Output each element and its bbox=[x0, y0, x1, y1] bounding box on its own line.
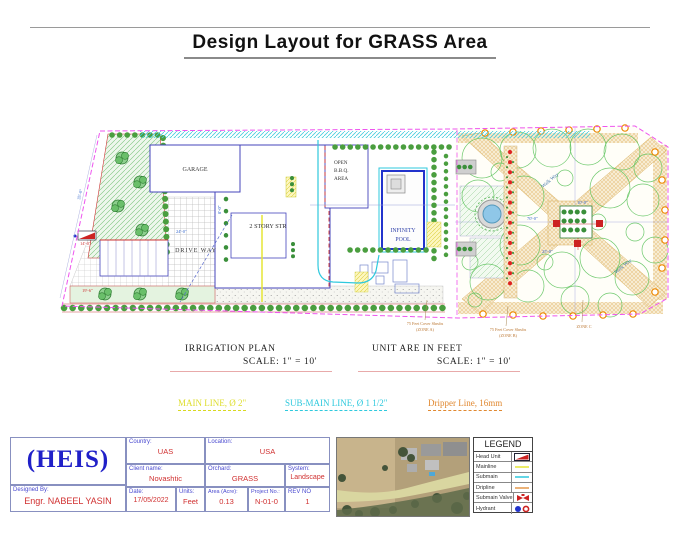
irrigation-plan-note: IRRIGATION PLAN bbox=[185, 344, 276, 354]
bbq-label: AREA bbox=[334, 176, 348, 182]
scale-note-left: SCALE: 1" = 10' bbox=[243, 357, 317, 367]
garage-label: GARAGE bbox=[183, 167, 208, 173]
submain-valve-symbol bbox=[553, 220, 560, 227]
legend-row-hydrant: Hydrant bbox=[474, 503, 532, 513]
legend: LEGEND Head Unit Mainline Submain Dripli… bbox=[473, 437, 533, 513]
site-plan-drawing: Walk Way Walk Way 70'-0" 10'-0" 25'-0" bbox=[0, 0, 680, 432]
submain-valve-symbol bbox=[596, 220, 603, 227]
hydrant-icon bbox=[511, 503, 532, 513]
zone-annotation: (ZONE A) bbox=[416, 327, 434, 332]
dim-label: 25'-0" bbox=[542, 249, 553, 254]
dripper-line-label: Dripper Line, 16mm bbox=[428, 398, 502, 411]
bbq-area-outline: OPEN B.B.Q. AREA bbox=[325, 145, 368, 208]
legend-row-mainline: Mainline bbox=[474, 462, 532, 472]
submain-valve-symbol bbox=[574, 240, 581, 247]
submain-icon bbox=[511, 473, 532, 482]
field-orchard: Orchard: GRASS bbox=[205, 464, 285, 487]
field-project: Project No.: N-01-0 bbox=[248, 487, 285, 512]
main-line-label: MAIN LINE, Ø 2" bbox=[178, 398, 246, 411]
bbq-label: B.B.Q. bbox=[334, 168, 349, 174]
dim-label: 19'-6" bbox=[82, 288, 93, 293]
zone-annotation: 75 Feet Cover Shrubs bbox=[490, 327, 527, 332]
concrete-strip bbox=[215, 286, 443, 303]
dim-label: 8'-0" bbox=[217, 205, 222, 214]
head-unit-icon bbox=[511, 452, 532, 461]
dripline-icon bbox=[511, 483, 532, 492]
dim-label: 24'-0" bbox=[176, 229, 187, 234]
note-underline bbox=[170, 371, 332, 372]
designed-by-field: Designed By: Engr. NABEEL YASIN bbox=[10, 485, 126, 512]
field-rev: REV NO 1 bbox=[285, 487, 330, 512]
field-units: Units: Feet bbox=[176, 487, 205, 512]
field-country: Country: UAS bbox=[126, 437, 205, 464]
legend-row-submain-valve: Submain Valve bbox=[474, 493, 532, 503]
submain-line-label: SUB-MAIN LINE, Ø 1 1/2" bbox=[285, 398, 387, 411]
legend-row-head-unit: Head Unit bbox=[474, 452, 532, 462]
field-area: Area (Acre): 0.13 bbox=[205, 487, 248, 512]
field-client: Client name: Novashtic bbox=[126, 464, 205, 487]
zone-annotation: ZONE C bbox=[576, 324, 591, 329]
company-logo-box: (HEIS) bbox=[10, 437, 126, 485]
mainline-icon bbox=[511, 462, 532, 471]
field-location: Location: USA bbox=[205, 437, 330, 464]
submain-valve-icon bbox=[513, 493, 532, 502]
legend-row-submain: Submain bbox=[474, 473, 532, 483]
legend-row-dripline: Dripline bbox=[474, 483, 532, 493]
driveway-label: DRIVE WAY bbox=[175, 248, 217, 254]
flower-bed-strip bbox=[504, 146, 517, 298]
pool-label: INFINITY bbox=[390, 228, 416, 234]
pergola bbox=[100, 240, 168, 276]
dim-label: 10'-0" bbox=[577, 200, 588, 205]
units-note: UNIT ARE IN FEET bbox=[372, 344, 462, 354]
drawing-sheet: Design Layout for GRASS Area bbox=[0, 0, 680, 544]
heis-logo: (HEIS) bbox=[11, 438, 125, 482]
field-date: Date: 17/05/2022 bbox=[126, 487, 176, 512]
dim-label: 14'-0" bbox=[80, 241, 91, 246]
zone-annotation: 75 Feet Cover Shrubs bbox=[407, 321, 444, 326]
scale-note-right: SCALE: 1" = 10' bbox=[437, 357, 511, 367]
bbq-label: OPEN bbox=[334, 160, 348, 166]
field-system: System: Landscape bbox=[285, 464, 330, 487]
pool-label: POOL bbox=[395, 237, 411, 243]
satellite-image bbox=[336, 437, 470, 517]
note-underline bbox=[358, 371, 520, 372]
garden-area: Walk Way Walk Way 70'-0" 10'-0" 25'-0" bbox=[455, 125, 668, 319]
satellite-image-graphic bbox=[337, 438, 469, 516]
entry-porch bbox=[231, 213, 286, 258]
zone-annotation: (ZONE B) bbox=[499, 333, 517, 338]
legend-title: LEGEND bbox=[474, 438, 532, 452]
dim-label: 70'-0" bbox=[527, 216, 538, 221]
two-story-label: 2 STORY STR bbox=[249, 223, 287, 230]
